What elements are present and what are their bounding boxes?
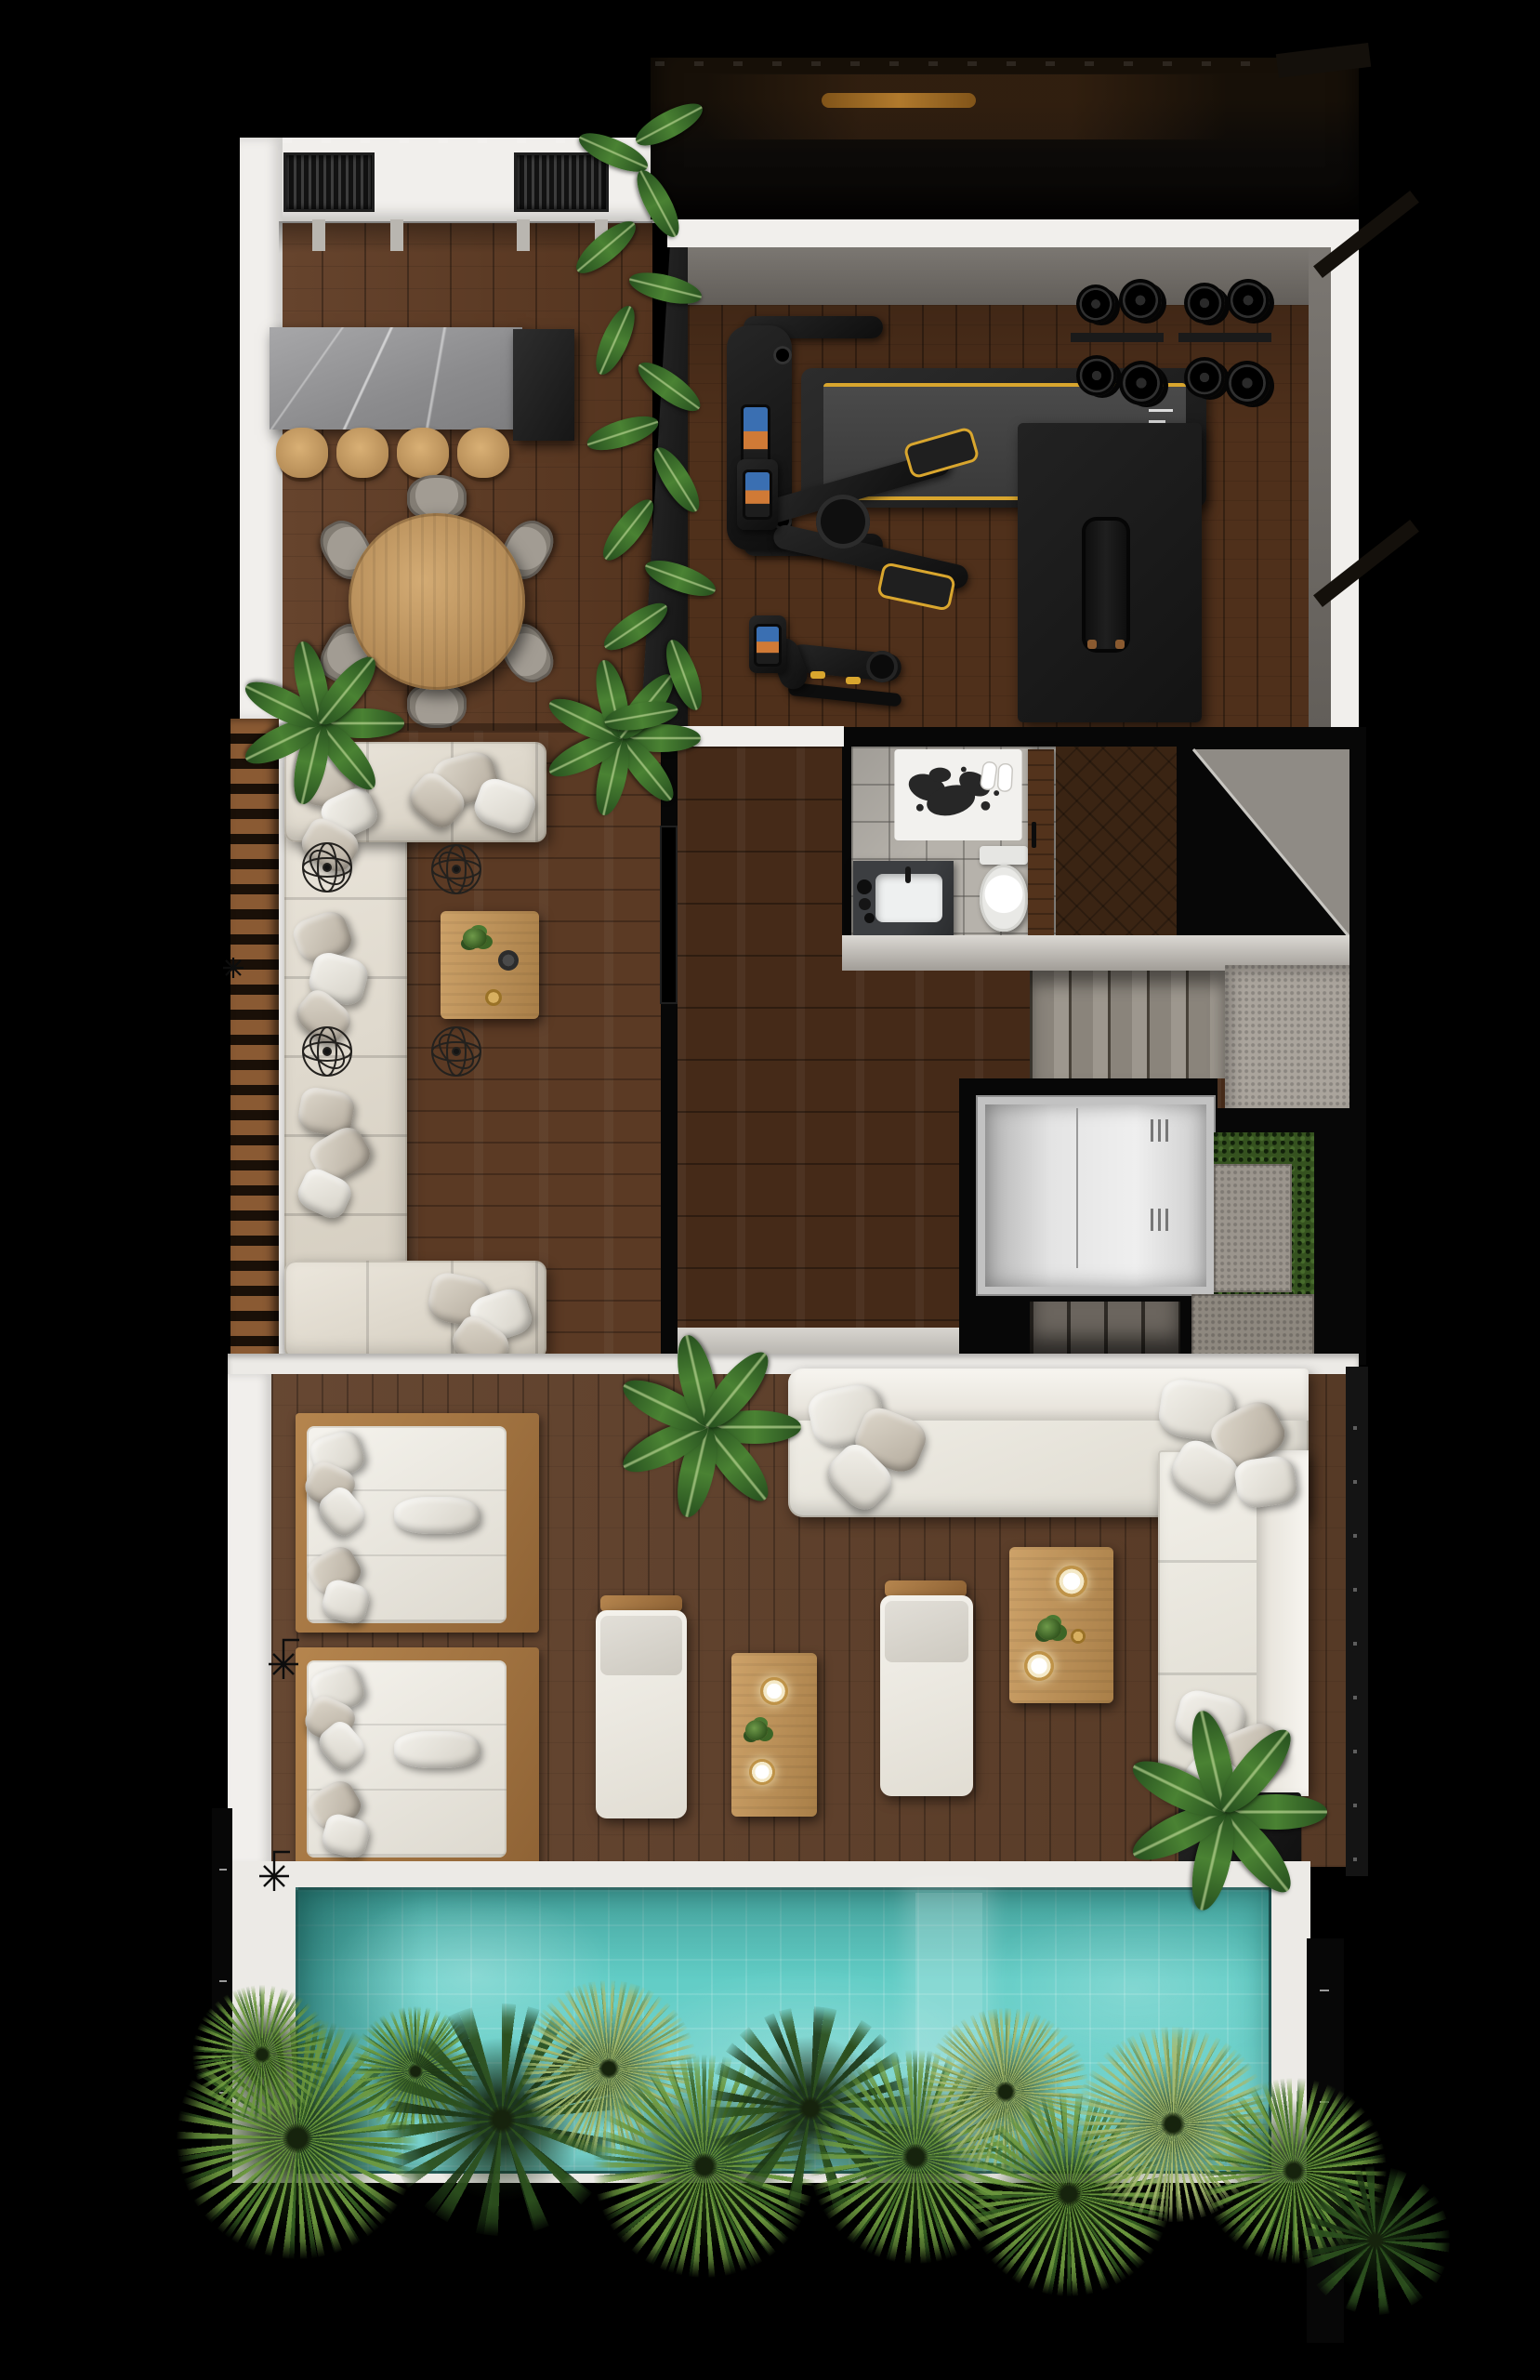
bike-seat [866, 651, 898, 682]
bar-island [270, 327, 522, 430]
gym-right-inner-band [1309, 247, 1331, 731]
weight-plates [1076, 355, 1117, 396]
stairs-upper [1030, 971, 1225, 1078]
fence-rivets [1353, 1376, 1357, 1869]
workout-bench [1082, 517, 1130, 653]
wall-white-segment [678, 726, 844, 747]
frame-tick [219, 1980, 227, 1982]
door-handle [1032, 822, 1036, 848]
daybed-lumbar-pillow [394, 1497, 480, 1534]
floorplan-scene [0, 0, 1540, 2380]
bar-stool [336, 428, 388, 478]
bar-stool [397, 428, 449, 478]
elevator-cab [978, 1097, 1214, 1294]
toilet-bowl [980, 865, 1028, 932]
wire-sphere-icon [300, 840, 354, 894]
bar-island-cabinet [513, 329, 574, 441]
bath-jar [859, 898, 871, 910]
wire-sphere-icon [300, 1025, 354, 1078]
weight-plates [1076, 284, 1115, 324]
treadmill-belt-mark [1149, 409, 1173, 412]
outdoor-shower-icon [253, 1848, 296, 1897]
stone-slab [1191, 1294, 1314, 1359]
candle-plate [1056, 1566, 1087, 1597]
toilet-tank [980, 846, 1028, 865]
elevator-door-seam [1076, 1108, 1078, 1268]
gym-sill [667, 219, 1359, 247]
wire-sphere-icon [429, 1025, 483, 1078]
counter-bracket [312, 219, 325, 251]
dining-chair [407, 683, 467, 728]
counter-bracket [517, 219, 530, 251]
table-gold-dish [485, 989, 502, 1006]
bar-stool [457, 428, 509, 478]
grill-insert-right [514, 152, 609, 212]
plate-rack [1071, 333, 1164, 342]
bike-accent [810, 671, 825, 679]
hose-bib-icon [219, 950, 247, 982]
glass-amber-stripe [822, 93, 976, 108]
weight-plates [1119, 361, 1164, 405]
stone-slab [1214, 1164, 1292, 1292]
plate-rack [1178, 333, 1271, 342]
table-plant [1037, 1618, 1061, 1640]
bar-stool [276, 428, 328, 478]
lounge-right-fence [1346, 1367, 1368, 1876]
treadmill-cupholder [773, 346, 792, 364]
bench-foot [1087, 640, 1097, 649]
table-gold-dish [1071, 1629, 1086, 1644]
glass-edge-noise [655, 61, 1352, 66]
elliptical-screen [745, 472, 770, 517]
stairs-lower [1030, 1302, 1180, 1355]
candle-plate [1024, 1651, 1054, 1681]
wire-sphere-icon [429, 842, 483, 896]
elevator-vent [1151, 1209, 1171, 1231]
wall-terrace-hall [661, 727, 678, 1365]
weight-plates [1119, 279, 1162, 322]
grill-insert-left [283, 152, 375, 212]
understair-wedge [1177, 744, 1349, 941]
candle-plate [760, 1677, 788, 1705]
tv-panel [660, 826, 678, 1004]
table-plant [463, 928, 487, 948]
treadmill-screen [744, 407, 768, 467]
candle-plate [749, 1759, 775, 1785]
lounge-left-wall [228, 1374, 271, 1867]
lounger-head-cushion [600, 1616, 682, 1675]
bench-foot [1115, 640, 1125, 649]
frame-tick [219, 1869, 227, 1871]
louver-screen [230, 719, 279, 1365]
sink-faucet [905, 866, 911, 883]
weight-plates [1184, 357, 1225, 398]
stair-landing [1225, 965, 1349, 1108]
elevator-vent [1151, 1119, 1171, 1142]
bath-art-mat [894, 749, 1022, 840]
bath-jar [864, 913, 875, 923]
weight-plates [1184, 283, 1225, 324]
bathroom-left-wall [842, 747, 851, 939]
weight-plates [1227, 279, 1270, 322]
hall-bottom-wall [678, 1328, 959, 1355]
counter-bracket [390, 219, 403, 251]
daybed-lumbar-pillow [394, 1731, 480, 1768]
bike-accent [846, 677, 861, 684]
outdoor-shower-icon [262, 1636, 305, 1685]
frame-tick [1320, 1990, 1329, 1991]
closet-floor [1056, 747, 1177, 939]
gym-right-wall [1331, 219, 1359, 740]
weight-plates [1225, 361, 1270, 405]
bike-screen [757, 627, 779, 664]
lounger-head-cushion [885, 1601, 968, 1662]
table-plant [745, 1720, 768, 1740]
bath-jar [857, 879, 872, 894]
table-bowl [498, 950, 519, 971]
hall-right-wall [1349, 744, 1366, 1365]
elliptical-flywheel [816, 495, 870, 549]
